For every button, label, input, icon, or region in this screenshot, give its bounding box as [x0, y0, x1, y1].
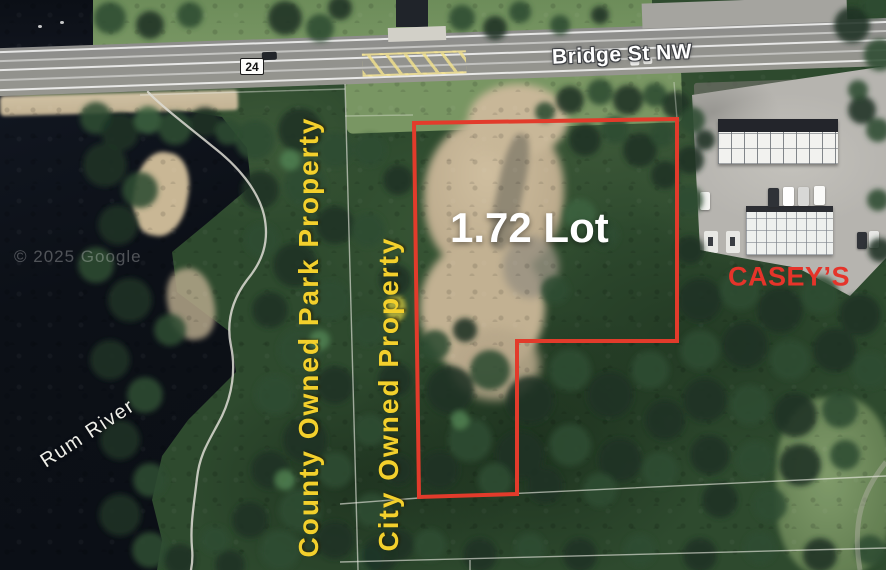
aerial-property-map: 24 Bridge St NW 1.72 Lot County Owned Pa…: [0, 0, 886, 570]
county-property-label: County Owned Park Property: [293, 117, 325, 558]
lot-acreage-label: 1.72 Lot: [450, 204, 609, 252]
route-24-shield: 24: [240, 58, 264, 75]
route-shield-number: 24: [245, 61, 258, 73]
city-property-label: City Owned Property: [373, 237, 405, 552]
google-watermark: © 2025 Google: [14, 247, 142, 267]
caseys-label: CASEY’S: [728, 262, 850, 293]
